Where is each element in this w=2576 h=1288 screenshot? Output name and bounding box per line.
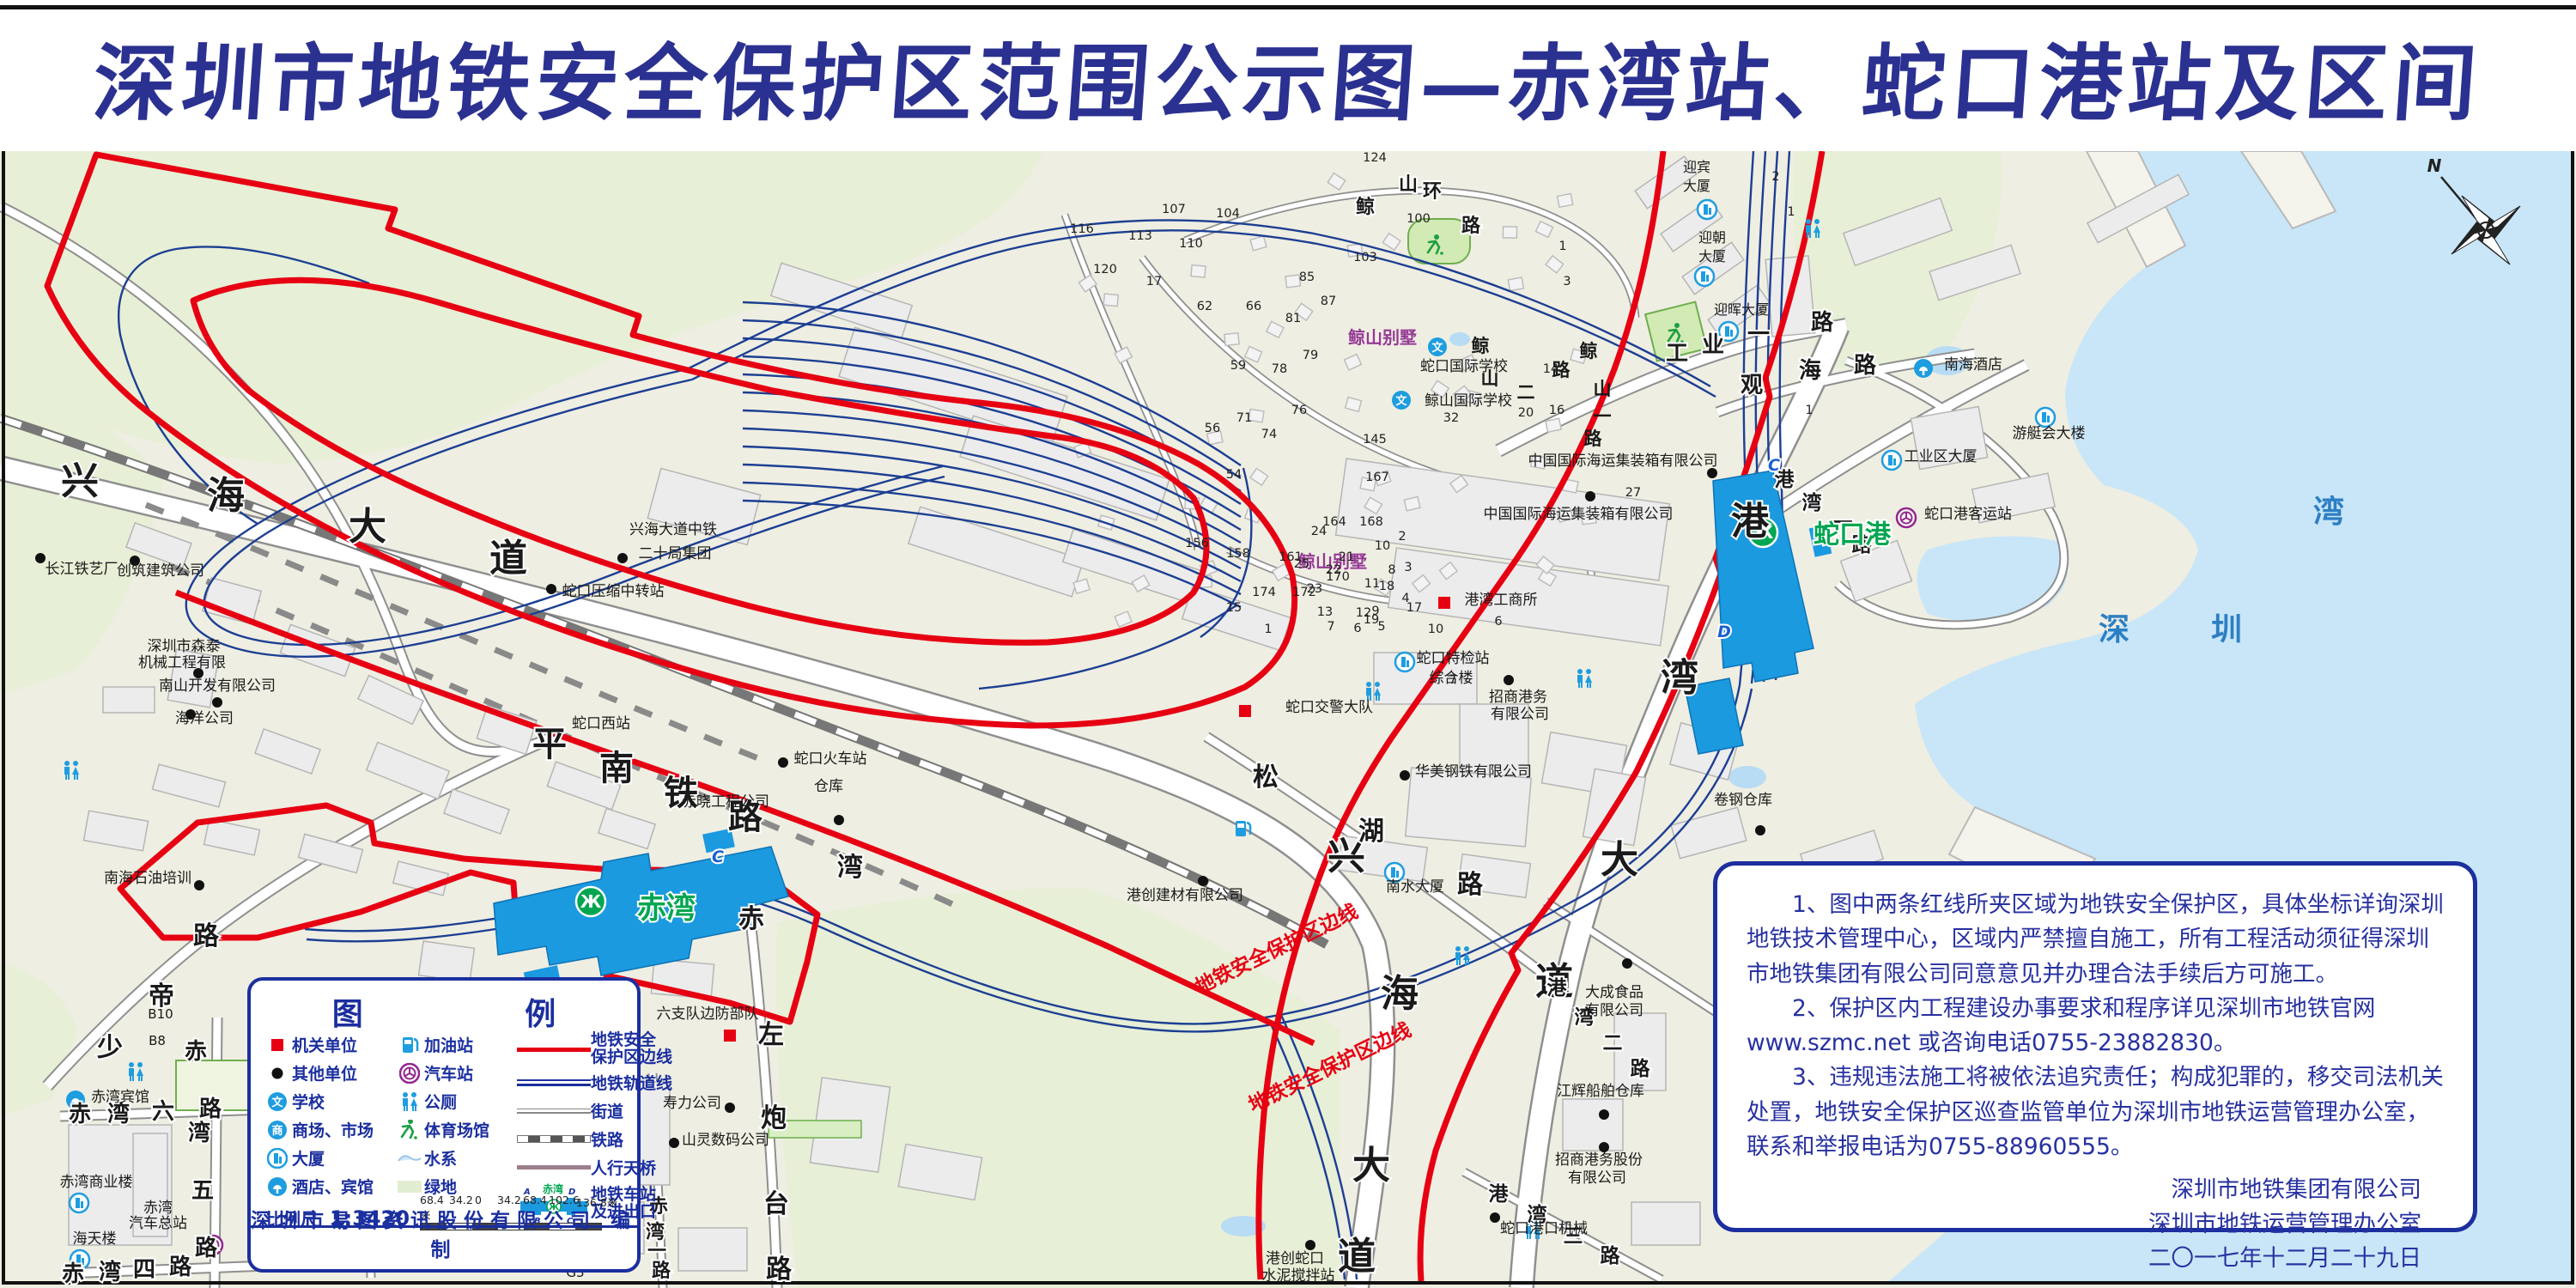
map-label: 路: [1631, 1057, 1651, 1080]
map-label: 大厦: [1698, 248, 1726, 264]
map-label: 路: [1601, 1244, 1621, 1267]
protect-line-sample: [517, 1048, 591, 1052]
map-label: 招商港务: [1489, 689, 1547, 706]
house-number: 6: [1353, 622, 1361, 635]
map-label: 江辉船舶仓库: [1557, 1083, 1644, 1100]
building-footprint: [678, 1228, 747, 1271]
map-label: 二十局集团: [639, 545, 712, 562]
signature-block: 深圳市地铁集团有限公司 深圳市地铁运营管理办公室 二〇一七年十二月二十九日: [1747, 1173, 2444, 1275]
house-number: 124: [1363, 151, 1387, 165]
villa-house: [1546, 418, 1561, 432]
school-icon: [1392, 391, 1411, 410]
page-title: 深圳市地铁安全保护区范围公示图—赤湾站、蛇口港站及区间: [0, 15, 2576, 137]
house-number: 4: [1401, 592, 1409, 605]
metro-logo-icon: [576, 887, 605, 916]
greenland-icon: [395, 1179, 424, 1194]
map-label: 蛇口特检站: [1417, 650, 1490, 667]
house-number: 20: [1518, 406, 1534, 420]
map-label: 赤: [69, 1102, 91, 1127]
bldg-icon: [1882, 451, 1901, 470]
map-label: 路: [766, 1255, 793, 1285]
map-label: 路: [199, 1096, 222, 1122]
map-label: 蛇口压缩中转站: [562, 583, 665, 600]
house-number: 13: [1317, 605, 1333, 619]
legend-box: 图 例 机关单位 其他单位 学校 商场、市场 大厦 酒店、宾馆 加油站 汽车站 …: [247, 977, 641, 1273]
map-label: 少: [97, 1033, 123, 1063]
map-label: 鲸: [1580, 341, 1598, 361]
map-label: 山: [1594, 379, 1612, 399]
map-label: 迎朝: [1698, 229, 1726, 246]
house-number: 32: [1443, 411, 1459, 425]
legend-item-gov: 机关单位: [263, 1030, 392, 1059]
map-label: 松: [1253, 762, 1279, 793]
house-number: 167: [1365, 471, 1389, 484]
map-label: 深圳市森泰: [148, 638, 221, 655]
hotel-icon: [1914, 359, 1933, 378]
map-label: 路: [652, 1260, 671, 1282]
house-number: 103: [1353, 251, 1377, 264]
villa-house: [1508, 277, 1523, 291]
sea-label: 深: [2099, 612, 2129, 647]
map-label: 二: [1517, 382, 1535, 403]
map-label: 蛇口港客运站: [1924, 506, 2012, 523]
map-label: 炮: [761, 1103, 787, 1133]
house-number: 79: [1303, 349, 1318, 362]
map-label: B10: [148, 1006, 173, 1022]
bldg-icon: [70, 1194, 88, 1212]
dot-icon: [1585, 491, 1595, 501]
note-3: 3、违规违法施工将被依法追究责任；构成犯罪的，移交司法机关处置，地铁安全保护区巡…: [1747, 1060, 2444, 1164]
map-label: 港: [1547, 977, 1568, 999]
school-icon: [1428, 337, 1447, 356]
dot-icon: [546, 584, 556, 594]
map-label: 蛇口交警大队: [1285, 699, 1373, 716]
house-number: 54: [1226, 468, 1242, 482]
building-footprint: [1563, 1099, 1623, 1151]
map-label: 招商港务股份: [1555, 1151, 1643, 1169]
house-number: 10: [1375, 539, 1390, 553]
dot-icon: [1599, 1109, 1609, 1120]
house-number: 107: [1162, 203, 1186, 216]
notes-box: 1、图中两条红线所夹区域为地铁安全保护区，具体坐标详询深圳地铁技术管理中心，区域…: [1713, 861, 2477, 1232]
house-number: 7: [1327, 620, 1334, 634]
map-label: 海: [1381, 972, 1419, 1016]
house-number: 23: [1307, 582, 1322, 596]
note-1: 1、图中两条红线所夹区域为地铁安全保护区，具体坐标详询深圳地铁技术管理中心，区域…: [1747, 888, 2444, 992]
map-label: 左: [758, 1020, 784, 1050]
house-number: 156: [1185, 537, 1209, 550]
map-label: 港创建材有限公司: [1127, 887, 1243, 904]
house-number: 14: [1543, 362, 1558, 376]
house-number: 6: [1494, 615, 1502, 629]
legend-item-redline: 地铁安全保护区边线: [517, 1030, 642, 1068]
building-footprint: [103, 687, 155, 713]
svg-text:N: N: [2427, 155, 2442, 176]
station-exit-label: C: [712, 848, 724, 866]
house-number: 3: [1404, 561, 1412, 574]
restroom-icon: [395, 1091, 424, 1112]
legend-item-rail: 铁路: [517, 1125, 642, 1153]
house-number: 10: [1428, 623, 1443, 636]
house-number: 25: [1294, 557, 1309, 571]
house-number: 22: [1326, 563, 1341, 577]
legend-credit: 深圳市易图资讯股份有限公司 编 制: [251, 1204, 637, 1262]
house-number: 7: [1449, 673, 1456, 687]
building-footprint: [1631, 1202, 1700, 1245]
villa-house: [1191, 265, 1206, 277]
legend-item-sport: 体育场馆: [395, 1115, 515, 1144]
map-label: 道: [489, 537, 527, 580]
map-label: 创筑建筑公司: [117, 562, 204, 580]
map-label: 海洋公司: [175, 710, 234, 727]
map-label: 路: [195, 1235, 218, 1261]
dot-icon: [1622, 958, 1632, 969]
legend-item-mall: 商场、市场: [263, 1115, 392, 1144]
house-number: 116: [1070, 222, 1094, 236]
mall-icon: [263, 1120, 292, 1140]
map-label: 湾: [99, 1259, 121, 1285]
map-label: 赤湾宾馆: [91, 1089, 149, 1106]
map-label: 大成食品: [1585, 984, 1643, 1001]
map-label: 有限公司: [1491, 706, 1549, 723]
house-number: 66: [1246, 300, 1261, 313]
map-label: 道: [1338, 1235, 1376, 1279]
map-label: 湾: [837, 853, 863, 883]
map-label: 山: [1399, 174, 1418, 196]
map-label: 海: [207, 474, 245, 518]
dot-icon: [1400, 770, 1410, 781]
house-number: 17: [1146, 275, 1162, 289]
sea-label: 圳: [2211, 612, 2242, 647]
dot-icon: [725, 1103, 735, 1113]
house-number: 9: [1371, 605, 1379, 618]
house-number: 1: [1264, 623, 1272, 636]
map-label: 六: [152, 1099, 174, 1125]
map-label: 蛇口火车站: [794, 750, 867, 768]
map-label: 长江铁艺厂: [46, 561, 118, 578]
legend-item-bridge: 人行天桥: [517, 1153, 642, 1182]
house-number: 145: [1363, 433, 1387, 447]
map-label: 路: [1854, 352, 1877, 379]
house-number: 16: [1549, 404, 1564, 417]
dot-icon: [1305, 1240, 1315, 1250]
legend-item-street: 街道: [517, 1097, 642, 1125]
title-top-rule: [0, 5, 2576, 9]
redsq-icon: [1239, 705, 1251, 717]
map-label: 有限公司: [1568, 1170, 1626, 1187]
notice-map-page: 文 商 Ж: [0, 0, 2576, 1288]
legend-item-gas: 加油站: [395, 1030, 515, 1059]
map-label: 工业区大厦: [1905, 448, 1978, 465]
map-label: 赤: [185, 1039, 207, 1065]
railway-sample: [517, 1135, 591, 1143]
map-label: 兴: [61, 459, 99, 503]
legend-item-bus: 汽车站: [395, 1059, 515, 1087]
house-number: 85: [1299, 270, 1315, 284]
map-label: 大: [1352, 1144, 1390, 1188]
station-exit-label: D: [1717, 623, 1731, 641]
sea-label: 湾: [2313, 494, 2344, 530]
map-label: 一: [1747, 322, 1770, 348]
house-number: 5: [1377, 620, 1385, 634]
house-number: 24: [1311, 525, 1327, 538]
redsq-icon: [724, 1030, 736, 1042]
water-icon: [395, 1151, 424, 1166]
villa-house: [1103, 294, 1118, 306]
villa-house: [1224, 333, 1239, 346]
map-label: 路: [1584, 428, 1603, 449]
villa-house: [1503, 227, 1516, 238]
house-number: 3: [1563, 275, 1571, 289]
map-label: 赤: [738, 904, 764, 934]
villa-house: [1404, 496, 1420, 510]
map-label: 业: [1702, 332, 1724, 358]
house-number: 76: [1291, 404, 1307, 417]
map-label: 卷钢仓库: [1714, 792, 1772, 809]
map-label: 南山开发有限公司: [159, 677, 276, 695]
map-label: B8: [149, 1033, 166, 1048]
house-number: 11: [1364, 577, 1380, 591]
map-label: 赤: [62, 1261, 84, 1287]
house-number: 81: [1285, 312, 1301, 325]
signature-date: 二〇一七年十二月二十九日: [1747, 1242, 2421, 1276]
map-label: 一: [1594, 406, 1612, 427]
map-label: 大: [349, 505, 386, 549]
dot-icon: [778, 757, 788, 768]
map-label: 赤晓工程公司: [682, 793, 769, 811]
legend-item-other: 其他单位: [263, 1059, 392, 1087]
house-number: 87: [1321, 295, 1336, 308]
house-number: 21: [1339, 550, 1354, 564]
map-label: 水泥搅拌站: [1262, 1267, 1335, 1285]
metro-line-sample: [517, 1079, 591, 1086]
map-label: 环: [1423, 181, 1442, 203]
map-label: 台: [763, 1189, 789, 1219]
map-label: 仓库: [814, 778, 843, 795]
map-label: 鲸: [1356, 196, 1375, 218]
house-number: 59: [1230, 359, 1246, 373]
bus-icon: [1897, 508, 1916, 527]
house-number: 12: [1356, 606, 1371, 620]
house-number: 56: [1205, 422, 1220, 435]
legend-title: 图 例: [251, 989, 637, 1034]
house-number: 2: [1398, 530, 1406, 544]
map-label: 2: [1772, 170, 1780, 184]
bldg-icon: [2036, 408, 2055, 427]
map-label: 湾: [188, 1120, 210, 1146]
map-label: 南: [599, 749, 634, 788]
map-label: 游艇会大楼: [2013, 425, 2086, 442]
map-label: 二: [1603, 1032, 1623, 1054]
map-label: 中国国际海运集装箱有限公司: [1484, 506, 1674, 523]
footbridge-sample: [517, 1165, 591, 1170]
dot-icon: [212, 697, 222, 708]
map-label: 路: [169, 1254, 192, 1280]
signature-company: 深圳市地铁集团有限公司: [1747, 1173, 2421, 1207]
dot-icon: [1490, 1212, 1500, 1223]
map-label: 南海酒店: [1944, 356, 2002, 374]
map-label: 六支队边防部队: [657, 1005, 759, 1023]
bldg-icon: [1698, 200, 1716, 219]
house-number: 8: [1388, 563, 1395, 577]
dot-icon: [834, 815, 844, 825]
house-number: 120: [1093, 263, 1117, 276]
map-label: 路: [193, 921, 220, 951]
map-label: 五: [191, 1178, 214, 1204]
house-number: 27: [1625, 486, 1641, 500]
map-label: 1: [1788, 205, 1795, 219]
map-label: 鲸山别墅: [1348, 327, 1417, 348]
map-label: 机械工程有限: [138, 654, 226, 671]
map-label: 海天楼: [73, 1230, 117, 1248]
house-number: 113: [1128, 229, 1152, 243]
map-label: 山灵数码公司: [682, 1132, 769, 1149]
house-number: 104: [1216, 207, 1240, 221]
map-label: 大: [1601, 838, 1638, 882]
map-label: 一: [647, 1241, 666, 1262]
map-label: 汽车总站: [129, 1215, 187, 1232]
school-icon: [263, 1091, 292, 1112]
map-label: 港: [1731, 500, 1770, 544]
bus-station-icon: [395, 1063, 424, 1084]
map-label: 港湾工商所: [1465, 592, 1538, 609]
map-label: 四: [133, 1257, 155, 1283]
station-name: 蛇口港: [1814, 520, 1892, 550]
map-label: 平: [532, 725, 567, 764]
legend-item-building: 大厦: [263, 1144, 392, 1172]
house-number: 158: [1226, 547, 1250, 561]
map-label: 港创蛇口: [1266, 1250, 1324, 1267]
map-label: 赤湾商业楼: [60, 1174, 133, 1191]
other-unit-icon: [263, 1064, 292, 1083]
map-label: 路: [1461, 215, 1481, 237]
legend-item-water: 水系: [395, 1144, 515, 1172]
house-number: 78: [1272, 362, 1287, 376]
map-label: 湖: [1358, 817, 1384, 847]
map-label: 赤湾: [143, 1200, 173, 1217]
station-name: 赤湾: [637, 891, 696, 926]
house-number: 168: [1359, 515, 1383, 529]
dot-icon: [35, 553, 46, 563]
map-label: 迎宾: [1683, 159, 1710, 175]
house-number: 18: [1379, 580, 1394, 593]
building-footprint: [419, 941, 475, 982]
gov-unit-icon: [263, 1036, 292, 1054]
map-label: 湾: [1802, 491, 1822, 514]
legend-item-track: 地铁轨道线: [517, 1068, 642, 1097]
dot-icon: [617, 553, 628, 563]
map-label: 1: [1806, 404, 1814, 417]
house-number: 74: [1261, 428, 1277, 441]
note-2: 2、保护区内工程建设办事要求和程序详见深圳市地铁官网www.szmc.net 或…: [1747, 992, 2444, 1061]
dot-icon: [194, 880, 204, 890]
title-band: 深圳市地铁安全保护区范围公示图—赤湾站、蛇口港站及区间: [0, 0, 2576, 151]
map-label: 鲸: [1472, 336, 1490, 356]
map-label: 迎晖大厦: [1714, 301, 1769, 318]
map-label: 蛇口国际学校: [1420, 358, 1508, 375]
map-label: 大厦: [1683, 178, 1710, 194]
house-number: 174: [1252, 586, 1276, 599]
legend-item-wc: 公厕: [395, 1087, 515, 1115]
dot-icon: [1755, 825, 1765, 835]
map-label: 鲸山国际学校: [1425, 392, 1512, 410]
map-label: 海: [1799, 358, 1821, 384]
dot-icon: [1504, 675, 1514, 685]
map-label: 蛇口西站: [572, 715, 630, 732]
sport-venue-icon: [395, 1120, 424, 1140]
building-icon: [263, 1148, 292, 1169]
street-sample: [517, 1109, 591, 1114]
house-number: 100: [1406, 212, 1431, 226]
map-label: 寿力公司: [663, 1095, 721, 1112]
villa-house: [1558, 194, 1573, 208]
map-label: 观: [1741, 373, 1763, 398]
dot-icon: [1198, 876, 1208, 886]
station-exit-label: C: [1768, 456, 1780, 475]
house-number: 71: [1236, 411, 1252, 425]
map-label: 有限公司: [1585, 1002, 1643, 1019]
map-label: 港: [1489, 1183, 1510, 1206]
redsq-icon: [1438, 597, 1450, 609]
bldg-icon: [1395, 653, 1414, 671]
house-number: 110: [1179, 237, 1203, 251]
map-label: 华美钢铁有限公司: [1415, 763, 1532, 781]
map-label: 湾: [1661, 656, 1698, 700]
legend-item-school: 学校: [263, 1087, 392, 1115]
house-number: 62: [1197, 300, 1212, 313]
map-label: 路: [1811, 309, 1834, 336]
map-label: 工: [1666, 341, 1688, 367]
map-label: 蛇口港口机械: [1500, 1220, 1588, 1237]
map-label: 路: [1457, 870, 1484, 900]
map-label: 兴海大道中铁: [629, 521, 717, 538]
house-number: 1: [1558, 240, 1566, 253]
map-label: 南海石油培训: [104, 870, 191, 887]
map-label: 中国国际海运集装箱有限公司: [1528, 453, 1718, 470]
map-label: 南水大厦: [1386, 878, 1444, 896]
house-number: 15: [1226, 601, 1242, 615]
dot-icon: [669, 1138, 679, 1148]
signature-office: 深圳市地铁运营管理办公室: [1747, 1207, 2421, 1242]
gas-station-icon: [395, 1035, 424, 1055]
bldg-icon: [1695, 267, 1714, 286]
